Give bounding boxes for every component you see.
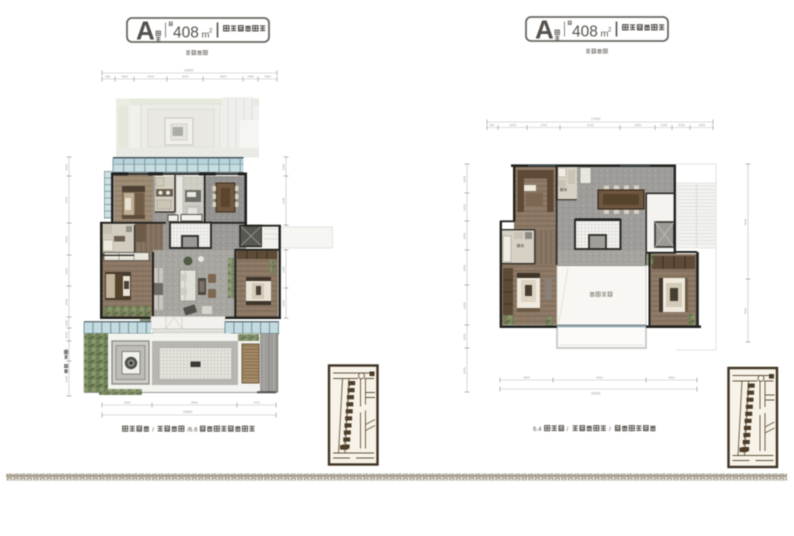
svg-text:3600: 3600 [182, 75, 189, 79]
svg-text:1900: 1900 [264, 75, 271, 79]
svg-text:16400: 16400 [591, 392, 601, 396]
svg-text:6.4: 6.4 [533, 426, 542, 433]
svg-text:2600: 2600 [65, 163, 69, 170]
svg-text:3000: 3000 [124, 400, 131, 404]
svg-text:/6.6: /6.6 [187, 427, 198, 434]
svg-text:1900: 1900 [699, 123, 706, 127]
svg-text:2800: 2800 [635, 123, 642, 127]
svg-text:2400: 2400 [541, 123, 548, 127]
svg-text:7800: 7800 [744, 218, 748, 225]
svg-text:3600: 3600 [523, 375, 530, 379]
svg-text:2900: 2900 [463, 302, 467, 309]
svg-text:17400: 17400 [591, 117, 601, 121]
svg-text:14400: 14400 [184, 69, 194, 73]
svg-text:3300: 3300 [147, 75, 154, 79]
svg-text:2600: 2600 [65, 196, 69, 203]
svg-text:2900: 2900 [463, 333, 467, 340]
svg-text:2900: 2900 [463, 264, 467, 271]
svg-text:2600: 2600 [65, 298, 69, 305]
svg-text:12600: 12600 [183, 410, 193, 414]
svg-text:1500: 1500 [678, 123, 685, 127]
svg-text:2600: 2600 [65, 375, 69, 382]
svg-text:A: A [136, 16, 155, 46]
svg-text:A: A [535, 15, 554, 45]
svg-text:9300: 9300 [596, 375, 603, 379]
svg-text:3300: 3300 [282, 266, 286, 273]
svg-text:3300: 3300 [282, 163, 286, 170]
svg-text:7800: 7800 [744, 307, 748, 314]
svg-text:3900: 3900 [220, 75, 227, 79]
svg-text:/: / [609, 426, 611, 433]
svg-text:408: 408 [572, 24, 598, 41]
svg-text:8600: 8600 [191, 400, 198, 404]
svg-text:2900: 2900 [463, 204, 467, 211]
svg-text:1500: 1500 [661, 123, 668, 127]
svg-text:2600: 2600 [65, 319, 69, 326]
svg-text:900: 900 [490, 123, 495, 127]
svg-text:1700: 1700 [253, 400, 260, 404]
svg-text:2900: 2900 [463, 232, 467, 239]
svg-text:3300: 3300 [282, 197, 286, 204]
svg-text:/: / [152, 427, 154, 434]
svg-text:/: / [567, 426, 569, 433]
svg-text:2900: 2900 [463, 367, 467, 374]
svg-text:408: 408 [173, 25, 199, 42]
svg-text:2600: 2600 [65, 267, 69, 274]
svg-text:2400: 2400 [510, 123, 517, 127]
svg-text:2600: 2600 [65, 331, 69, 338]
svg-text:2900: 2900 [463, 175, 467, 182]
svg-text:3500: 3500 [668, 375, 675, 379]
svg-text:2600: 2600 [65, 236, 69, 243]
svg-text:5100: 5100 [587, 123, 594, 127]
svg-text:1500: 1500 [121, 75, 128, 79]
svg-text:900: 900 [105, 75, 110, 79]
svg-text:1500: 1500 [247, 75, 254, 79]
svg-text:3300: 3300 [282, 300, 286, 307]
